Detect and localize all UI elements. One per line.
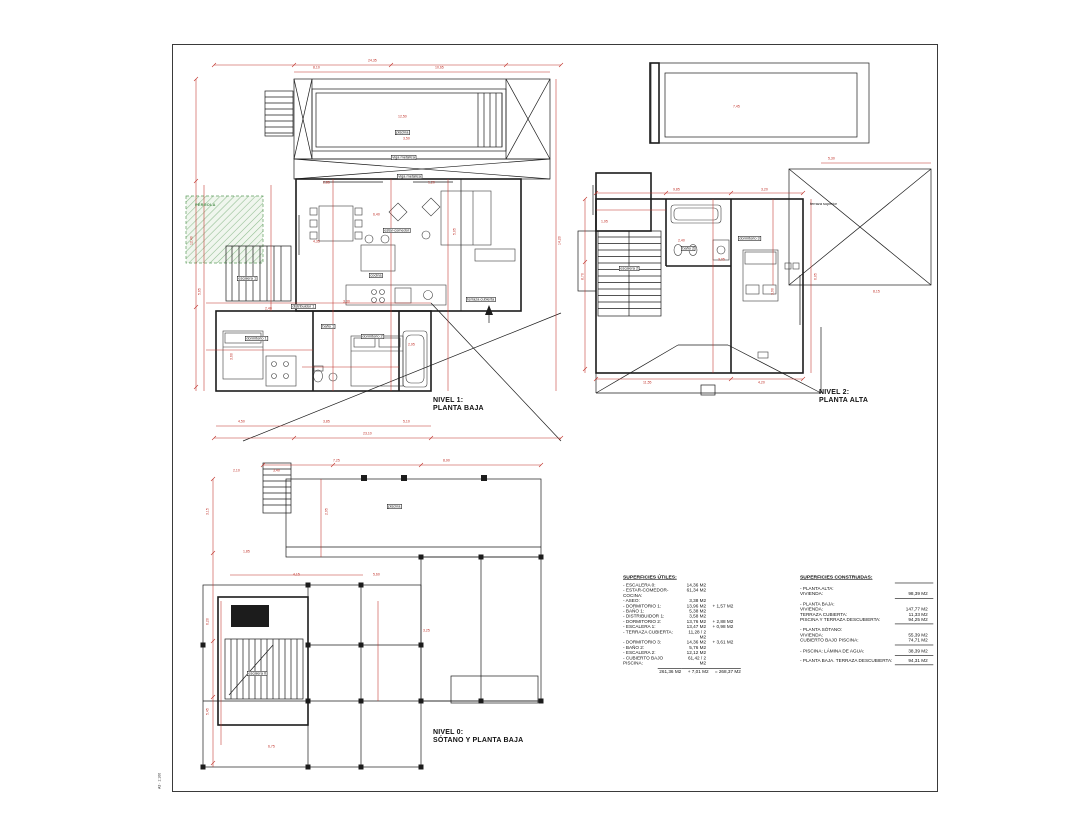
dimension-label: 1,95 bbox=[601, 220, 608, 224]
plan2-title: NIVEL 2: PLANTA ALTA bbox=[819, 389, 868, 405]
superficies-utiles-table: SUPERFICIES ÚTILES: - ESCALERA 0:14,36 M… bbox=[623, 574, 747, 674]
room-label: dormitorio 3 bbox=[738, 236, 761, 241]
kitchen-island bbox=[361, 245, 395, 271]
plan1-nivel1-drawing bbox=[186, 63, 563, 441]
room-label: viga metálica bbox=[397, 174, 422, 179]
pool bbox=[312, 89, 506, 151]
dimension-label: 24,35 bbox=[368, 59, 377, 63]
superficies-construidas-table: SUPERFICIES CONSTRUIDAS: - PLANTA ALTA: … bbox=[800, 574, 933, 666]
dimension-label: 5,10 bbox=[403, 420, 410, 424]
table-row: CUBIERTO BAJO PISCINA:74,71 M2 bbox=[800, 638, 933, 643]
bed-2 bbox=[351, 336, 403, 386]
dimension-label: 7,25 bbox=[333, 459, 340, 463]
room-label: escalera 0 bbox=[247, 671, 268, 676]
room-label: estar-comedor bbox=[383, 228, 411, 233]
dimension-label: 6,75 bbox=[268, 745, 275, 749]
dimension-label: 3,05 bbox=[718, 258, 725, 262]
dimension-label: 3,50 bbox=[403, 137, 410, 141]
utiles-title: SUPERFICIES ÚTILES: bbox=[623, 574, 747, 580]
upper-floor-outline bbox=[596, 199, 803, 373]
dimension-label: 1,85 bbox=[243, 550, 250, 554]
plan3-title: NIVEL 0: SÓTANO Y PLANTA BAJA bbox=[433, 729, 523, 745]
table-row: - CUBIERTO BAJO PISCINA:61,42 / 2 M2 bbox=[623, 656, 747, 666]
dimension-label: 4,15 bbox=[293, 573, 300, 577]
table-row: - ESTAR-COMEDOR-COCINA:61,34 M2 bbox=[623, 588, 747, 598]
dimension-label: 5,30 bbox=[828, 157, 835, 161]
table-row: VIVIENDA:98,39 M2 bbox=[800, 592, 933, 597]
dimension-label: 4,20 bbox=[758, 381, 765, 385]
dimension-label: 6,20 bbox=[206, 618, 210, 625]
dimension-label: 2,95 bbox=[325, 508, 329, 515]
dimension-label: 2,40 bbox=[678, 239, 685, 243]
room-label: piscina bbox=[395, 130, 410, 135]
dimension-label: 11,55 bbox=[643, 381, 652, 385]
room-label: PÉRGOLA bbox=[195, 203, 216, 207]
dimension-label: 12,50 bbox=[398, 115, 407, 119]
dimension-label: 12,40 bbox=[190, 236, 194, 245]
exterior-stair bbox=[265, 91, 293, 136]
equipment bbox=[231, 605, 269, 627]
armchair bbox=[389, 203, 407, 221]
dimension-label: 4,35 bbox=[313, 240, 320, 244]
dimension-label: 5,05 bbox=[453, 228, 457, 235]
dimension-label: 3,40 bbox=[273, 469, 280, 473]
dimension-label: 23,10 bbox=[363, 432, 372, 436]
shower bbox=[266, 356, 296, 386]
room-label: terraza cubierta bbox=[466, 297, 496, 302]
dimension-label: 3,25 bbox=[423, 629, 430, 633]
dimension-label: 3,60 bbox=[230, 353, 234, 360]
plan3-nivel0-drawing bbox=[201, 463, 544, 770]
dimension-label: 3,20 bbox=[761, 188, 768, 192]
dimension-label: 8,70 bbox=[581, 273, 585, 280]
dining-table bbox=[319, 206, 353, 241]
plan1-title: NIVEL 1: PLANTA BAJA bbox=[433, 397, 484, 413]
dimension-label: 8,10 bbox=[313, 66, 320, 70]
room-label: escalera 2 bbox=[619, 266, 640, 271]
drawing-sheet-view: A3 · 1:100 bbox=[0, 0, 1080, 835]
dimension-label: 8,15 bbox=[873, 290, 880, 294]
bathtub-1 bbox=[403, 331, 427, 387]
room-label: escalera 1 bbox=[237, 276, 258, 281]
table-row: - PLANTA BAJA. TERRAZA DESCUBIERTA:94,31… bbox=[800, 658, 933, 663]
dimension-label: 5,45 bbox=[206, 708, 210, 715]
plan2-dimension-lines bbox=[583, 163, 931, 381]
dimension-label: 14,20 bbox=[558, 236, 562, 245]
toilet bbox=[314, 370, 323, 382]
room-label: piscina bbox=[387, 504, 402, 509]
plan2-nivel2-drawing bbox=[578, 63, 931, 395]
room-label: dormitorio 2 bbox=[361, 334, 384, 339]
flat-roof bbox=[651, 63, 869, 143]
sofa bbox=[441, 191, 491, 245]
dimension-label: 9,85 bbox=[673, 188, 680, 192]
dimension-label: 5,60 bbox=[373, 573, 380, 577]
sheet-frame: NIVEL 1: PLANTA BAJA NIVEL 2: PLANTA ALT… bbox=[172, 44, 938, 792]
hip-roof bbox=[596, 327, 821, 395]
room-label: dormitorio 1 bbox=[245, 336, 268, 341]
dimension-label: 3,85 bbox=[323, 420, 330, 424]
room-label: cocina bbox=[369, 273, 383, 278]
dimension-label: 10,65 bbox=[435, 66, 444, 70]
dimension-label: 8,90 bbox=[443, 459, 450, 463]
table-total-row: 261,36 M2+ 7,01 M2= 268,37 M2 bbox=[623, 668, 747, 674]
dimension-label: 2,85 bbox=[323, 181, 330, 185]
armchair bbox=[422, 198, 440, 216]
dimension-label: 6,40 bbox=[373, 213, 380, 217]
balcony bbox=[578, 231, 596, 291]
dimension-label: 3,15 bbox=[206, 508, 210, 515]
room-label: baño 2 bbox=[681, 246, 696, 251]
table-row: - PISCINA: LÁMINA DE AGUA:38,39 M2 bbox=[800, 649, 933, 654]
dimension-label: 2,40 bbox=[265, 307, 272, 311]
room-label: terraza superior bbox=[810, 202, 837, 206]
construidas-title: SUPERFICIES CONSTRUIDAS: bbox=[800, 574, 933, 580]
plot-stamp: A3 · 1:100 bbox=[158, 773, 162, 789]
dimension-label: 2,95 bbox=[408, 343, 415, 347]
dimension-label: 2,10 bbox=[233, 469, 240, 473]
dimension-label: 7,45 bbox=[733, 105, 740, 109]
terrace-deck bbox=[286, 479, 541, 557]
room-label: distribuidor 1 bbox=[291, 304, 316, 309]
room-label: viga metálica bbox=[391, 155, 416, 160]
floor-plans-drawing bbox=[173, 45, 937, 791]
dimension-label: 4,50 bbox=[238, 420, 245, 424]
dimension-label: 5,65 bbox=[198, 288, 202, 295]
dimension-label: 1,20 bbox=[428, 181, 435, 185]
dimension-label: 3,90 bbox=[771, 288, 775, 295]
dimension-label: 3,30 bbox=[343, 300, 350, 304]
north-arrow-icon bbox=[485, 305, 493, 323]
table-row: PISCINA Y TERRAZA DESCUBIERTA:94,25 M2 bbox=[800, 617, 933, 622]
dimension-label: 6,05 bbox=[814, 273, 818, 280]
room-label: baño 1 bbox=[321, 324, 336, 329]
pool-steps bbox=[478, 93, 502, 147]
